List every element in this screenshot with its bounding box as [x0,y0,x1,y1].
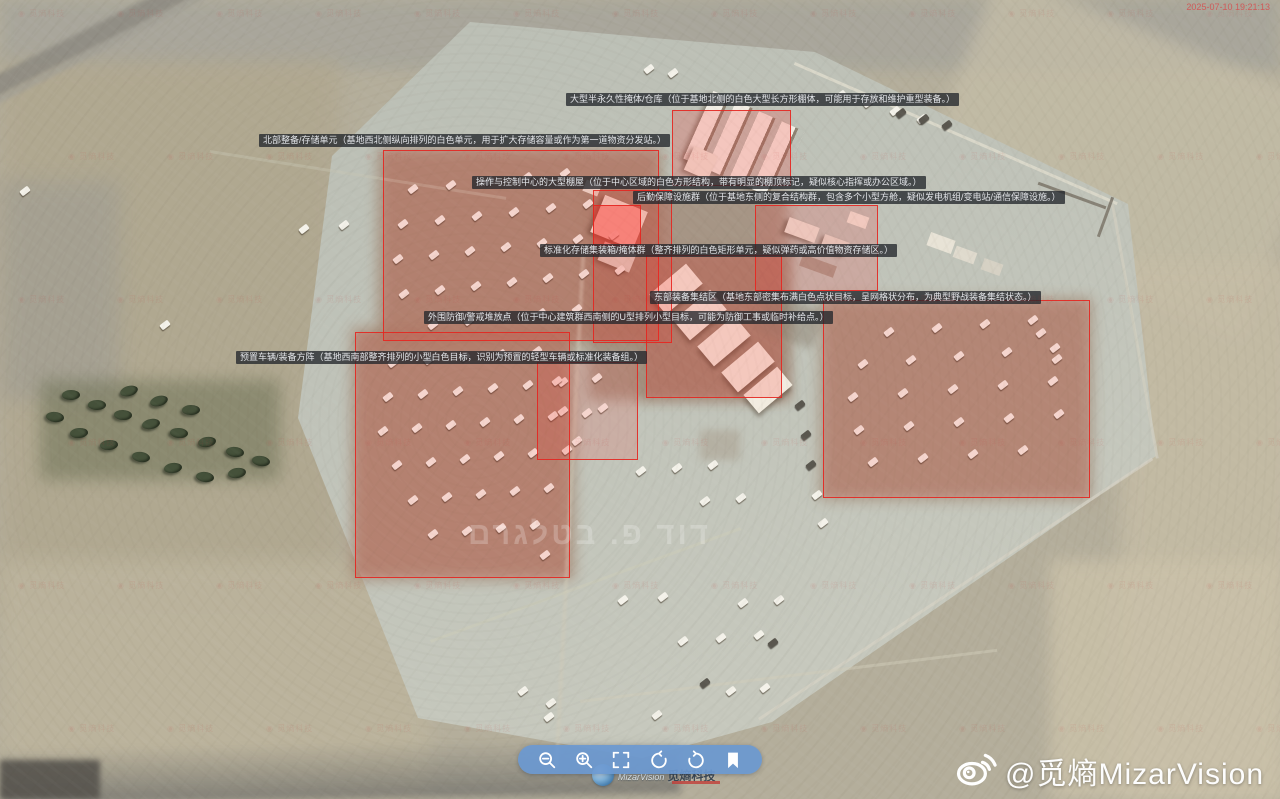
region-control-highlight[interactable] [593,205,641,246]
zoom-in-icon [574,750,594,770]
terrain-bottom-corner [0,760,100,799]
label-perimeter: 外围防御/警戒堆放点（位于中心建筑群西南侧的U型排列小型目标，可能为防御工事或临… [424,311,833,324]
label-control-shed: 操作与控制中心的大型棚屋（位于中心区域的白色方形结构，带有明显的棚顶标记，疑似核… [472,176,926,189]
satellite-annotation-viewer: 觅熵科技觅熵科技觅熵科技觅熵科技觅熵科技觅熵科技觅熵科技觅熵科技觅熵科技觅熵科技… [0,0,1280,799]
watermark-tile: 觅熵科技 [1008,580,1055,591]
watermark-tile: 觅熵科技 [860,723,907,734]
label-north-shelter: 大型半永久性掩体/仓库（位于基地北侧的白色大型长方形棚体，可能用于存放和维护重型… [566,93,959,106]
rotate-cw-icon [686,750,706,770]
watermark-tile: 觅熵科技 [761,723,808,734]
zoom-out-icon [537,750,557,770]
weibo-handle-text: @觅熵MizarVision [1005,749,1264,793]
label-preset-array: 预置车辆/装备方阵（基地西南部整齐排列的小型白色目标，识别为预置的轻型车辆或标准… [236,351,647,364]
label-east-assembly: 东部装备集结区（基地东部密集布满白色点状目标，呈网格状分布，为典型野战装备集结状… [650,291,1041,304]
watermark-tile: 觅熵科技 [959,723,1006,734]
viewer-toolbar [518,745,762,774]
label-logistics: 后勤保障设施群（位于基地东侧的复合结构群，包含多个小型方舱，疑似发电机组/变电站… [633,191,1065,204]
ground-stain-2 [700,430,740,460]
zoom-out-button[interactable] [536,749,558,771]
bookmark-icon [724,751,742,769]
rotate-ccw-button[interactable] [648,749,670,771]
region-east-assembly[interactable] [823,300,1090,498]
logo-red-underline [672,781,720,784]
fullscreen-icon [611,750,631,770]
terrain-west-gray [0,180,120,400]
region-north-warehouse[interactable] [672,110,791,186]
label-north-storage: 北部整备/存储单元（基地西北侧纵向排列的白色单元，用于扩大存储容量或作为第一道物… [259,134,670,147]
zoom-in-button[interactable] [573,749,595,771]
weibo-watermark: @觅熵MizarVision [955,748,1264,793]
label-containers: 标准化存储集装箱/掩体群（整齐排列的白色矩形单元，疑似弹药或高价值物资存储区。） [540,244,897,257]
fullscreen-button[interactable] [610,749,632,771]
weibo-icon [955,748,997,793]
vegetation [88,400,106,410]
region-perimeter-defense[interactable] [537,362,638,460]
bookmark-button[interactable] [722,749,744,771]
rotate-ccw-icon [649,750,669,770]
rotate-cw-button[interactable] [685,749,707,771]
timestamp: 2025-07-10 19:21:13 [1186,2,1270,12]
region-container-storage[interactable] [646,255,782,398]
